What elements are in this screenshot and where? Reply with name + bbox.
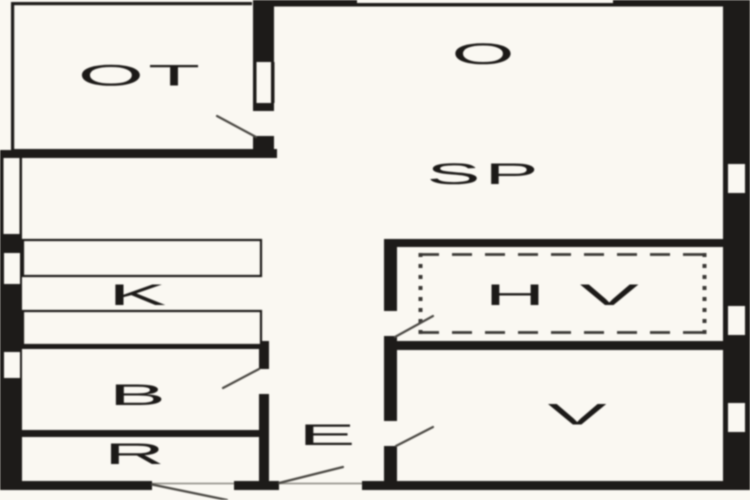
svg-text:B: B (109, 378, 170, 412)
svg-text:R: R (104, 437, 169, 470)
svg-text:SP: SP (426, 157, 542, 190)
svg-text:V: V (580, 278, 643, 312)
svg-text:O: O (451, 37, 518, 70)
svg-text:V: V (548, 398, 611, 432)
svg-text:OT: OT (78, 59, 204, 92)
svg-text:E: E (298, 418, 359, 452)
svg-text:K: K (108, 278, 170, 312)
svg-text:H: H (485, 279, 550, 312)
